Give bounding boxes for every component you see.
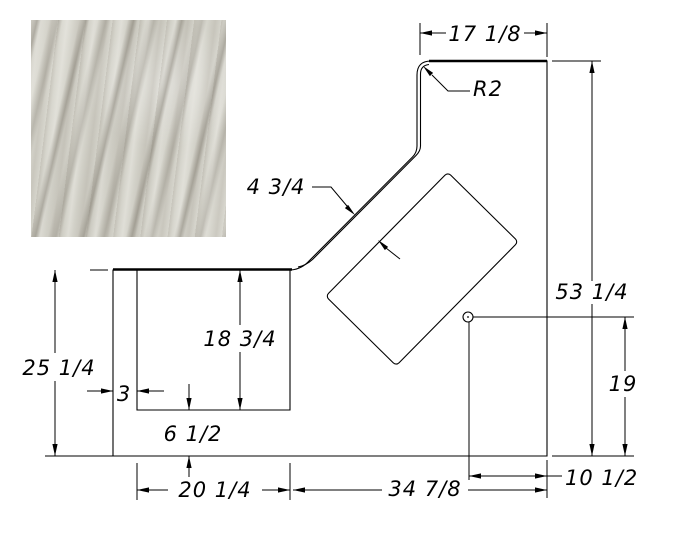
dim-right-height: 53 1/4 xyxy=(555,61,628,456)
arrow-right-icon xyxy=(535,30,547,35)
arrow-down-icon xyxy=(237,398,242,410)
slab-outline xyxy=(113,61,547,456)
countertop-drawing: 17 1/8 R2 4 3/4 53 1/4 19 xyxy=(0,0,696,540)
dim-corner-radius-label: R2 xyxy=(473,77,503,101)
faucet-hole-center xyxy=(467,316,469,318)
dim-cutout-front-offset: 6 1/2 xyxy=(164,384,223,477)
dim-left-height-label: 25 1/4 xyxy=(22,356,95,380)
dim-faucet-right-offset: 10 1/2 xyxy=(469,466,638,490)
arrow-right-icon xyxy=(535,473,547,478)
dim-top-width-label: 17 1/8 xyxy=(448,22,521,46)
arrow-right-icon xyxy=(278,487,290,492)
dim-faucet-height: 19 xyxy=(609,317,638,456)
arrow-down-icon xyxy=(52,444,57,456)
dim-cutout-left-offset-label: 3 xyxy=(117,382,131,406)
dim-right-height-label: 53 1/4 xyxy=(555,280,628,304)
sink-cutout xyxy=(326,172,519,365)
dim-bottom-width-label: 34 7/8 xyxy=(388,477,461,501)
dim-bottom-width: 34 7/8 xyxy=(293,477,547,501)
arrow-left-icon xyxy=(137,388,149,393)
dim-left-height: 25 1/4 xyxy=(22,270,95,456)
arrow-up-icon xyxy=(186,456,191,468)
dim-top-width: 17 1/8 xyxy=(420,22,547,46)
leader-arrow-icon xyxy=(345,205,355,215)
arrow-up-icon xyxy=(237,270,242,282)
arrow-up-icon xyxy=(622,317,627,329)
dim-cutout-width-label: 20 1/4 xyxy=(178,478,251,502)
countertop-outline xyxy=(113,61,547,456)
arrow-right-icon xyxy=(101,388,113,393)
cutouts xyxy=(137,172,518,410)
arrow-up-icon xyxy=(589,61,594,73)
sink-leader-line xyxy=(386,248,400,259)
arrow-left-icon xyxy=(137,487,149,492)
dim-cutout-height: 18 3/4 xyxy=(203,270,276,410)
dim-corner-radius: R2 xyxy=(423,66,503,101)
dim-diagonal-edge: 4 3/4 xyxy=(247,175,355,215)
arrow-down-icon xyxy=(186,398,191,410)
dim-faucet-right-offset-label: 10 1/2 xyxy=(565,466,638,490)
dim-diagonal-edge-label: 4 3/4 xyxy=(247,175,306,199)
dim-cutout-height-label: 18 3/4 xyxy=(203,327,276,351)
arrow-up-icon xyxy=(52,270,57,282)
arrow-right-icon xyxy=(535,487,547,492)
arrow-down-icon xyxy=(589,444,594,456)
diagonal-edge-profile xyxy=(298,65,429,268)
dim-cutout-left-offset: 3 xyxy=(87,382,164,406)
dim-cutout-width: 20 1/4 xyxy=(137,478,290,502)
dim-faucet-height-label: 19 xyxy=(609,372,638,396)
extension-lines xyxy=(45,23,634,500)
arrow-left-icon xyxy=(420,30,432,35)
dim-cutout-front-offset-label: 6 1/2 xyxy=(164,422,223,446)
arrow-left-icon xyxy=(293,487,305,492)
leader-line xyxy=(432,75,470,91)
leader-arrow-icon xyxy=(423,66,433,76)
drawing-canvas: 17 1/8 R2 4 3/4 53 1/4 19 xyxy=(0,0,696,540)
arrow-down-icon xyxy=(622,444,627,456)
arrow-left-icon xyxy=(469,473,481,478)
